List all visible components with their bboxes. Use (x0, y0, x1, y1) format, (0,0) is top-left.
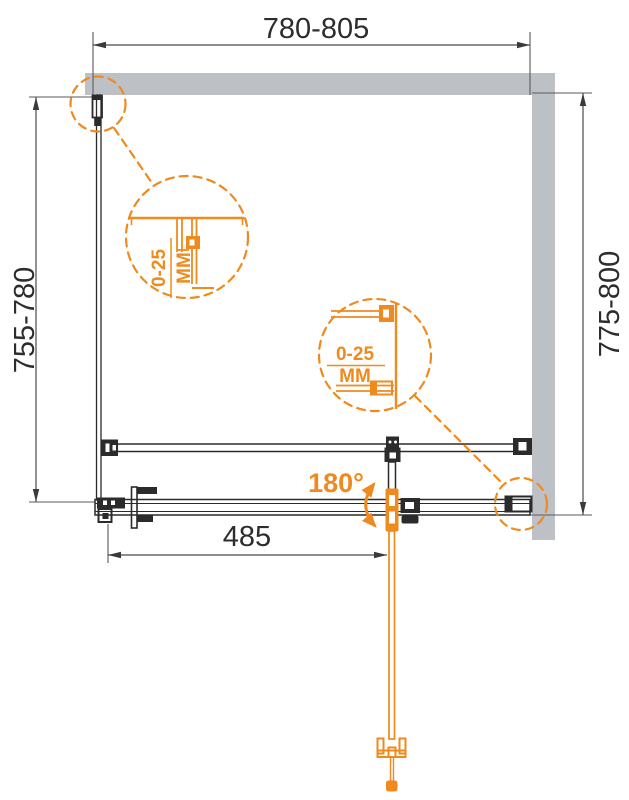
dimension-door-width-label: 485 (223, 521, 271, 553)
detail-adjustment-top: 0-25 MM (130, 218, 244, 298)
rotation-angle-label: 180° (308, 468, 364, 498)
rail-right-bracket-cap (506, 497, 513, 512)
door-hinge (386, 489, 399, 532)
guide-center-block (389, 748, 396, 758)
bracket-slot (519, 442, 527, 451)
wall-profile-clamp (94, 117, 100, 126)
pivot-door-open (378, 489, 406, 792)
detail-callouts (71, 77, 548, 531)
guide-stem (391, 757, 394, 781)
hinge-slot (389, 512, 395, 524)
door-rail-frame (95, 500, 530, 516)
dimension-door-width: 485 (108, 521, 387, 563)
screw (103, 501, 107, 506)
side-panel-glass (97, 95, 102, 500)
adjustment-unit: MM (174, 252, 195, 284)
screw (111, 501, 115, 506)
wall-profile-cap (93, 96, 103, 101)
dimension-right-label: 775-800 (594, 251, 626, 357)
door-bottom-guide (378, 739, 406, 792)
handle-arm-top (137, 487, 157, 494)
door-glass-panel (389, 531, 395, 739)
dimension-left: 755-780 (9, 97, 95, 502)
clamp-notch (390, 453, 397, 459)
clamp-slot (383, 310, 389, 318)
leader-line (415, 396, 502, 483)
bracket-slot (113, 445, 117, 451)
detail-bracket-cap (371, 382, 377, 395)
center-post (389, 462, 396, 490)
adjustment-unit: MM (339, 366, 371, 387)
handle-post (132, 487, 138, 528)
screw (394, 441, 397, 444)
installation-diagram: 780-805 755-780 775-800 (0, 0, 629, 800)
adjustment-range: 0-25 (149, 249, 170, 287)
clamp-slot (190, 240, 195, 246)
pivot-bracket-lower (402, 516, 419, 524)
hinge-slot (389, 495, 395, 506)
screw (389, 441, 392, 444)
bracket-slot (106, 444, 110, 453)
adjustment-range: 0-25 (336, 344, 374, 365)
door-handle-bracket (132, 487, 158, 528)
right-wall (532, 95, 555, 540)
door-swing-annotation: 180° (308, 468, 375, 526)
support-bar-center-clamp (386, 437, 399, 448)
top-wall (85, 73, 555, 95)
guide-foot (386, 781, 398, 792)
dimension-top-label: 780-805 (263, 13, 369, 45)
detail-adjustment-right: 0-25 MM (327, 303, 396, 409)
rotation-arc-arrow (366, 484, 375, 526)
handle-arm-bottom (137, 515, 153, 523)
corner-foot-dot (103, 513, 109, 519)
diagram-canvas: 780-805 755-780 775-800 (0, 0, 629, 800)
leader-line (114, 128, 152, 183)
bracket-slot (405, 502, 414, 509)
dimension-left-label: 755-780 (9, 267, 41, 373)
side-panel (93, 95, 103, 500)
